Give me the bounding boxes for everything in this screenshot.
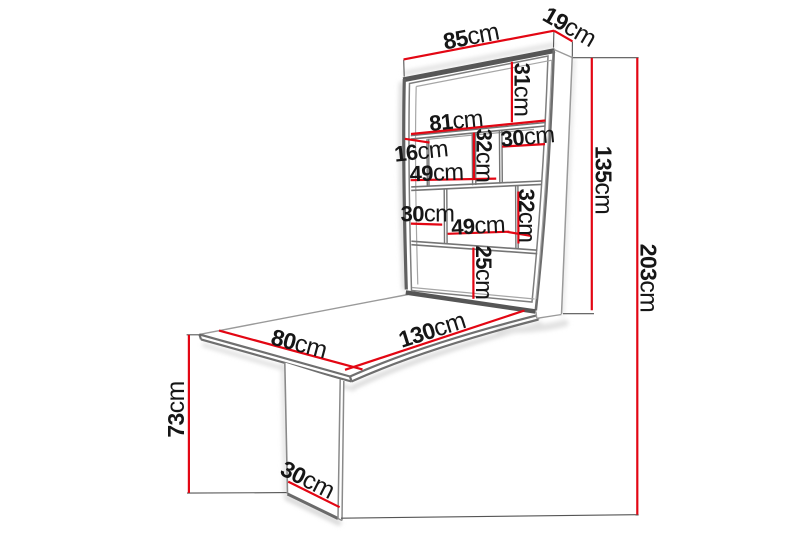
svg-text:30cm: 30cm xyxy=(401,200,455,227)
svg-text:32cm: 32cm xyxy=(471,129,498,183)
svg-text:25cm: 25cm xyxy=(471,246,498,300)
svg-text:203cm: 203cm xyxy=(635,244,662,312)
svg-text:49cm: 49cm xyxy=(450,211,505,241)
svg-text:32cm: 32cm xyxy=(514,189,541,243)
svg-text:135cm: 135cm xyxy=(590,146,617,214)
svg-text:30cm: 30cm xyxy=(500,121,556,153)
svg-text:49cm: 49cm xyxy=(409,158,464,187)
svg-text:73cm: 73cm xyxy=(163,381,190,437)
svg-text:31cm: 31cm xyxy=(509,63,536,117)
